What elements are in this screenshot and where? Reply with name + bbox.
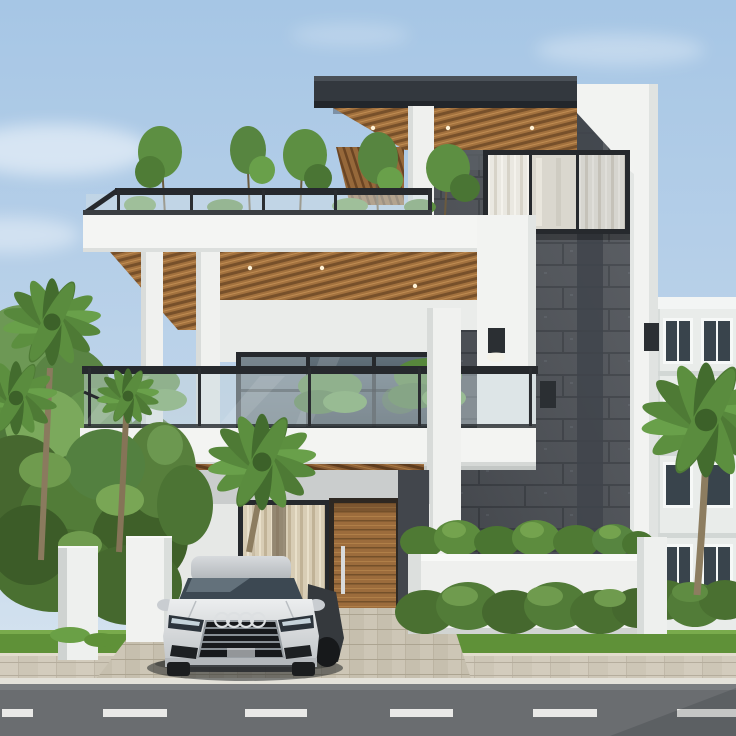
door-handle (341, 546, 345, 594)
neighbor-gate-pillar-shade (637, 537, 644, 634)
architectural-render-scene (0, 0, 736, 736)
car-tire-left (167, 662, 190, 676)
car-plate (227, 648, 255, 657)
neighbor-parapet (650, 297, 736, 309)
car-tire-right (292, 662, 315, 676)
scene-canvas (0, 0, 736, 736)
curb (0, 678, 736, 684)
fascia-band (83, 215, 536, 252)
fascia-trim (83, 210, 432, 215)
entry-door (329, 498, 401, 619)
